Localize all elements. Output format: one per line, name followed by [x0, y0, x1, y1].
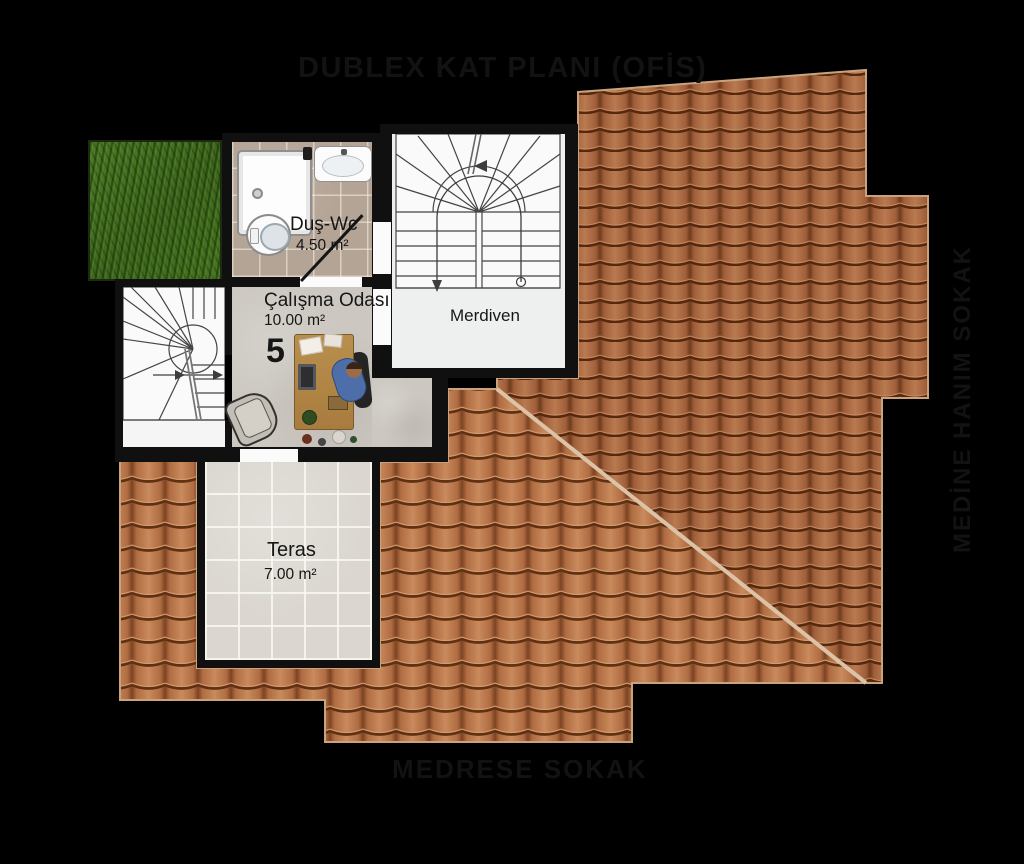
room-calisma-floor-ext — [372, 378, 432, 447]
wall-segment — [384, 368, 578, 378]
side-table — [332, 430, 346, 444]
floor-vase — [318, 438, 326, 446]
secondary-stair-drawing — [123, 287, 225, 447]
wall-segment — [565, 124, 578, 378]
desk-plant — [302, 410, 317, 425]
street-label-bottom: MEDRESE SOKAK — [392, 756, 624, 783]
washbasin — [314, 146, 372, 182]
plan-title: DUBLEX KAT PLANI (OFİS) — [298, 53, 670, 83]
floor-vase — [350, 436, 357, 443]
room-area-dus-wc: 4.50 m² — [296, 238, 349, 254]
room-label-calisma-odasi: Çalışma Odası — [264, 291, 390, 311]
street-label-right: MEDİNE HANIM SOKAK — [949, 245, 977, 553]
soap-dispenser — [303, 147, 312, 160]
door-opening — [240, 449, 298, 462]
floor-vase — [302, 434, 312, 444]
wall-segment — [372, 455, 380, 668]
toilet-flush — [250, 228, 259, 244]
wall-segment — [222, 133, 232, 287]
desk-scene — [294, 330, 372, 450]
toilet-bowl — [260, 223, 290, 251]
papers — [323, 333, 342, 348]
wall-segment — [115, 279, 232, 287]
wall-segment — [380, 124, 578, 134]
washbasin-bowl — [322, 155, 364, 177]
wall-segment — [115, 279, 123, 455]
room-label-merdiven: Merdiven — [450, 307, 520, 325]
room-teras-floor — [205, 462, 372, 660]
merdiven-stair-drawing — [392, 134, 565, 369]
floor-plan-canvas: DUBLEX KAT PLANI (OFİS) Duş-Wc 4.50 m² Ç… — [0, 0, 1024, 864]
door-opening — [373, 222, 391, 274]
wall-segment — [197, 660, 380, 668]
room-label-teras: Teras — [267, 540, 316, 561]
room-area-teras: 7.00 m² — [264, 567, 317, 583]
person-head — [346, 362, 362, 378]
wall-segment — [225, 287, 232, 355]
washbasin-faucet — [341, 149, 347, 155]
door-opening — [300, 277, 362, 287]
room-label-dus-wc: Duş-Wc — [290, 215, 358, 235]
room-area-calisma-odasi: 10.00 m² — [264, 313, 325, 329]
wall-segment — [222, 133, 380, 142]
grass-patch — [88, 140, 222, 281]
armchair-cushion — [232, 396, 273, 439]
shower-drain — [252, 188, 263, 199]
unit-number: 5 — [266, 334, 285, 370]
wall-segment — [197, 455, 205, 668]
laptop — [298, 364, 316, 390]
